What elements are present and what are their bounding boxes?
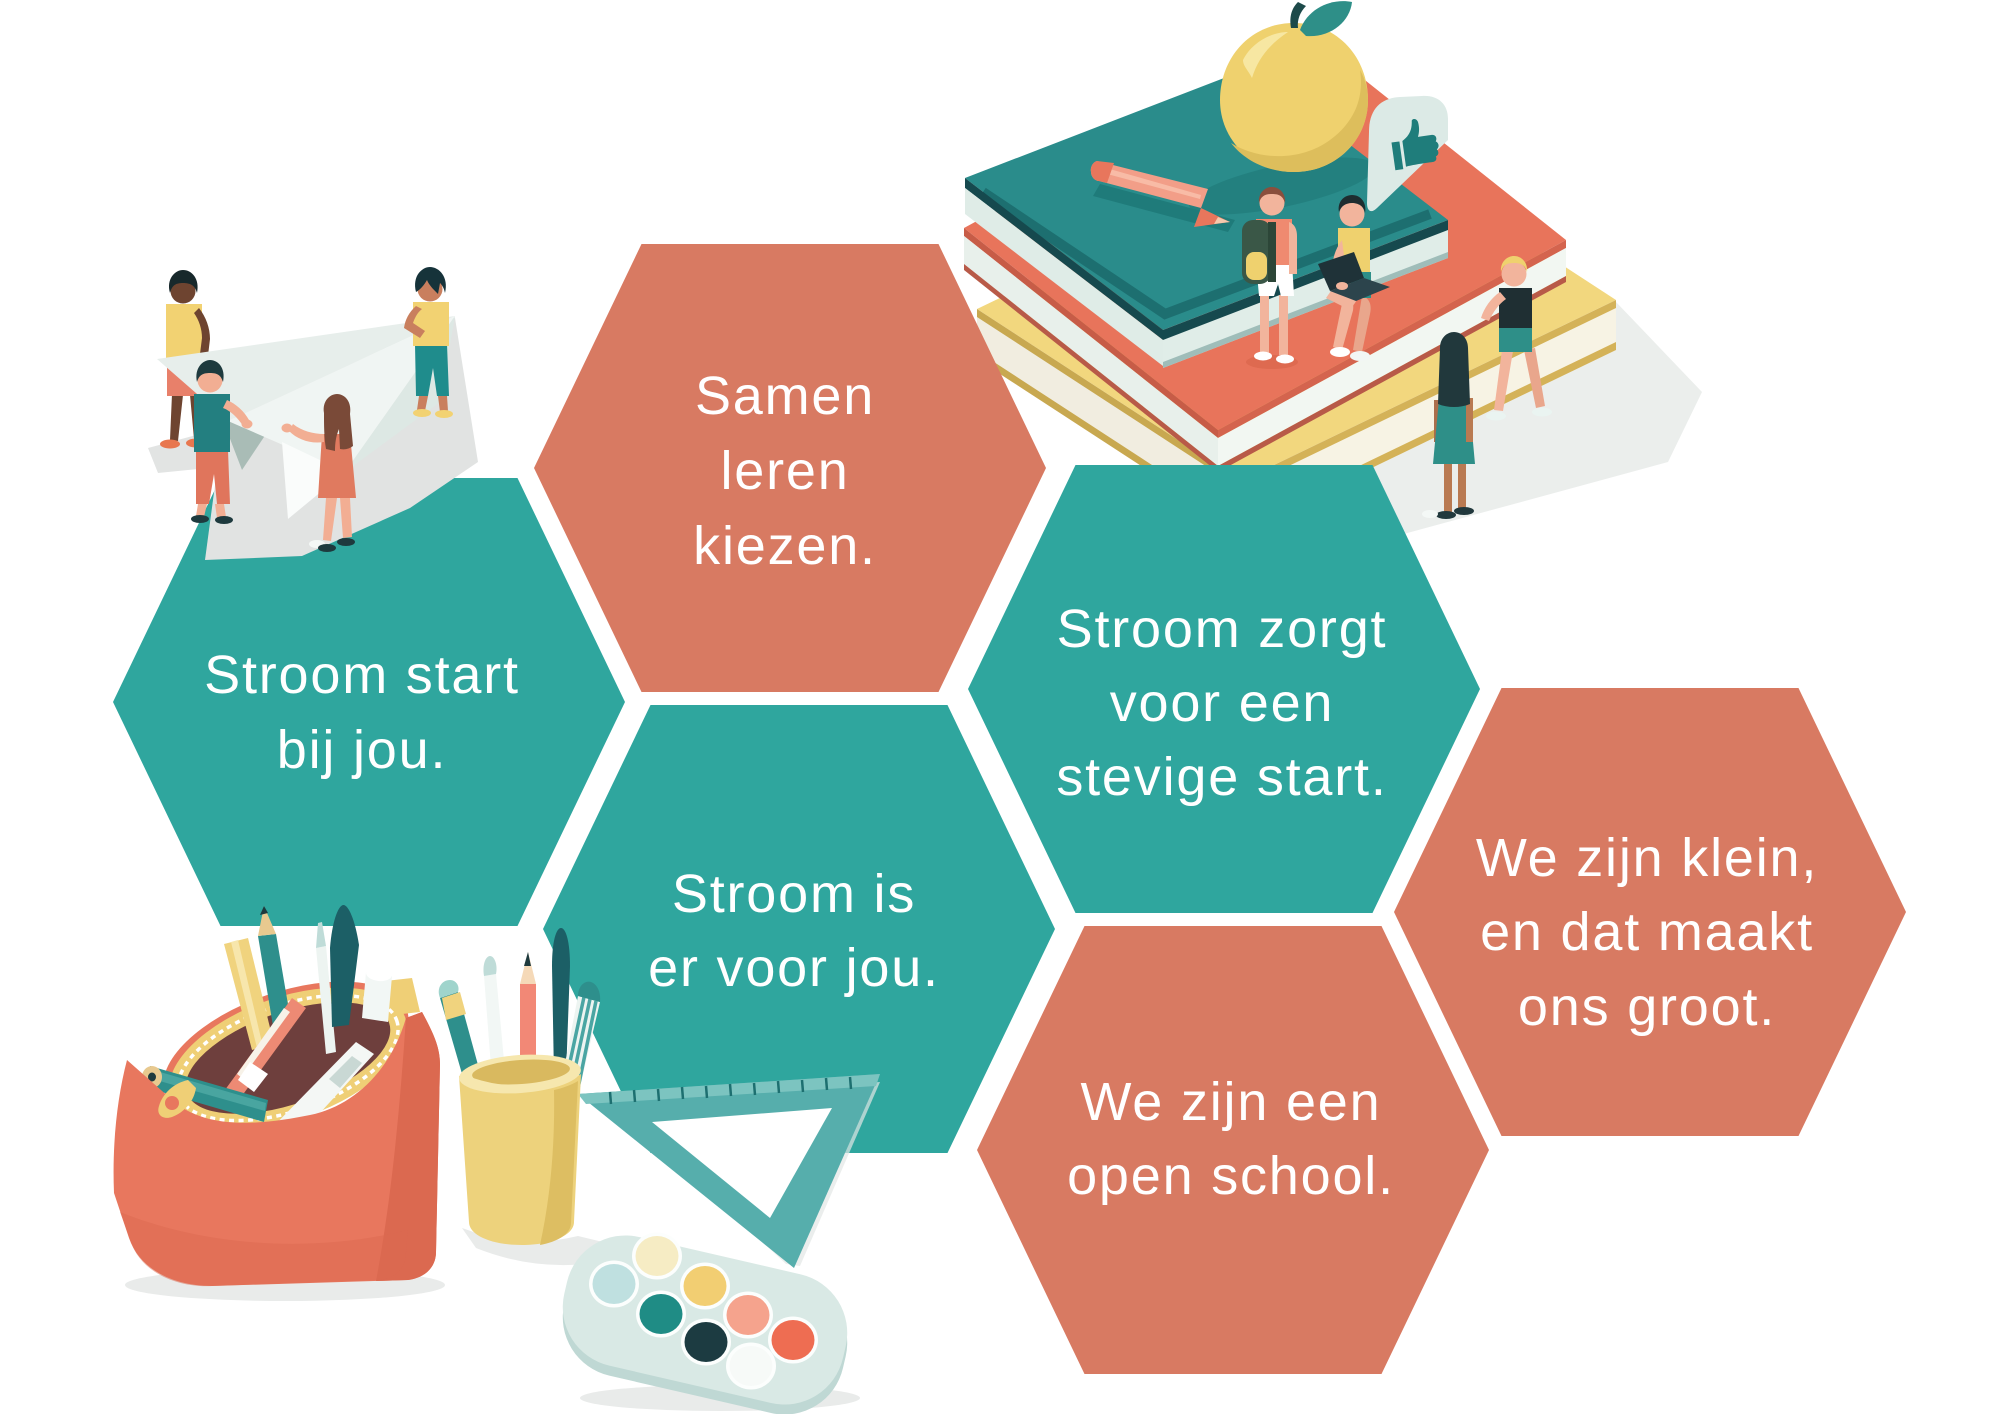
svg-text:Stroom zorgt: Stroom zorgt: [1057, 599, 1388, 659]
svg-text:We zijn klein,: We zijn klein,: [1476, 828, 1818, 888]
svg-text:Stroom start: Stroom start: [204, 645, 520, 705]
svg-text:Samen: Samen: [695, 366, 875, 426]
svg-text:stevige start.: stevige start.: [1056, 747, 1387, 807]
svg-text:leren: leren: [720, 441, 849, 501]
svg-text:ons groot.: ons groot.: [1518, 977, 1776, 1037]
svg-text:voor een: voor een: [1110, 673, 1335, 733]
svg-text:kiezen.: kiezen.: [693, 516, 877, 576]
svg-text:open school.: open school.: [1067, 1146, 1395, 1206]
svg-text:Stroom is: Stroom is: [672, 864, 916, 924]
svg-text:er voor jou.: er voor jou.: [648, 938, 940, 998]
svg-text:bij jou.: bij jou.: [277, 720, 448, 780]
svg-text:We zijn een: We zijn een: [1081, 1072, 1382, 1132]
svg-text:en dat maakt: en dat maakt: [1480, 902, 1814, 962]
